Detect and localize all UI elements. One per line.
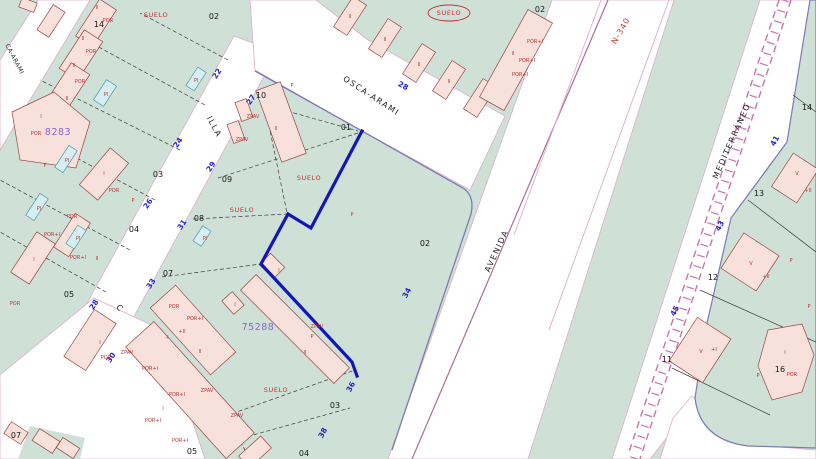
building-label: PI	[203, 236, 208, 242]
building-label: +II	[804, 188, 811, 194]
parcel-number-14: 14	[802, 103, 812, 112]
building-label: POR	[75, 79, 86, 85]
building-label: POR	[67, 214, 78, 220]
building-label: ZPAV	[121, 350, 134, 356]
building-label: +II	[762, 274, 769, 280]
parcel-number-05: 05	[64, 290, 74, 299]
parcel-number-16: 16	[775, 365, 785, 374]
building-label: P	[350, 212, 353, 218]
parcel-number-11: 11	[662, 355, 672, 364]
building-label: I	[99, 340, 100, 346]
building-label: POR	[787, 372, 798, 378]
building-label: PI	[104, 92, 109, 98]
building-label: -I	[165, 335, 168, 341]
building-label: II	[66, 96, 69, 102]
building-label: ZPAV	[311, 324, 324, 330]
building-label: ZPAV	[201, 388, 214, 394]
parcel-number-04: 04	[299, 449, 309, 458]
building-label: II	[82, 36, 85, 42]
building-label: I	[40, 114, 41, 120]
zone-label-suelo: SUELO	[144, 11, 169, 19]
parcel-number-13: 13	[754, 189, 764, 198]
building-label: II	[418, 62, 421, 68]
building-label: II	[73, 63, 76, 69]
building-label: POR+I	[187, 316, 203, 322]
parcel-number-08: 08	[194, 214, 204, 223]
building-label: +II	[178, 329, 185, 335]
parcel-number-12: 12	[708, 273, 718, 282]
building-label: ZPAV	[231, 413, 244, 419]
building-label: +I	[711, 347, 717, 353]
building-label: II	[448, 79, 451, 85]
building-label: I	[33, 257, 34, 263]
building-label: II	[349, 14, 352, 20]
parcel-number-05: 05	[187, 447, 197, 456]
building-label: V	[749, 261, 753, 267]
building-label: POR+I	[142, 366, 158, 372]
building-label: I	[784, 350, 785, 356]
building-label: POR+I	[169, 392, 185, 398]
zone-label-suelo: SUELO	[437, 9, 462, 17]
parcel-number-04: 04	[129, 225, 139, 234]
building-label: ZPAV	[236, 137, 249, 143]
building-label: POR	[101, 355, 112, 361]
building-label: POR+I	[44, 232, 60, 238]
zone-label-suelo: SUELO	[264, 386, 289, 394]
building-label: POR	[109, 188, 120, 194]
parcel-number-02: 02	[420, 239, 430, 248]
building-label: II	[275, 126, 278, 132]
building-label: II	[96, 5, 99, 11]
zone-label-suelo: SUELO	[230, 206, 255, 214]
building-label: POR+I	[519, 58, 535, 64]
building-label: I	[162, 406, 163, 412]
building-label: POR	[103, 18, 114, 24]
building-label: P	[756, 373, 759, 379]
reference-label-75288: 75288	[242, 322, 275, 333]
building-label: P	[43, 163, 46, 169]
building-label: POR	[169, 304, 180, 310]
building-label: ZPAV	[247, 114, 260, 120]
zone-label-suelo: SUELO	[297, 174, 322, 182]
building-label: POR+I	[145, 418, 161, 424]
parcel-number-07: 07	[11, 431, 21, 440]
building-label: II	[384, 37, 387, 43]
building-label: II	[304, 350, 307, 356]
building-label: P	[807, 304, 810, 310]
building-label: II	[96, 256, 99, 262]
building-label: II	[199, 349, 202, 355]
building-label: POR+I	[512, 72, 528, 78]
map-canvas[interactable]: OSCA-ARAMIILLACAVENIDAN-340MEDITERRÁNEOC…	[0, 0, 816, 459]
building-label: POR+I	[172, 438, 188, 444]
building-label: PI	[76, 236, 81, 242]
parcel-number-01: 01	[341, 123, 351, 132]
parcel-number-02: 02	[535, 5, 545, 14]
parcel-number-10: 10	[256, 91, 266, 100]
building-label: PI	[65, 158, 70, 164]
parcel-number-09: 09	[222, 175, 232, 184]
parcel-number-03: 03	[153, 170, 163, 179]
building-label: V	[699, 349, 703, 355]
parcel-number-02: 02	[209, 12, 219, 21]
building-label: PI	[37, 206, 42, 212]
building-label: POR+I	[527, 39, 543, 45]
building-label: I	[278, 268, 279, 274]
building-label: POR	[10, 301, 21, 307]
parcel-number-07: 07	[163, 269, 173, 278]
reference-label-8283: 8283	[45, 127, 71, 138]
parcel-number-03: 03	[330, 401, 340, 410]
building-label: P	[131, 198, 134, 204]
building-label: I	[103, 171, 104, 177]
building-label: P	[789, 258, 792, 264]
building-label: P	[290, 83, 293, 89]
building-label: V	[795, 171, 799, 177]
building-label: II	[512, 51, 515, 57]
building-label: POR	[86, 49, 97, 55]
building-label: POR+I	[70, 255, 86, 261]
building-label: P	[310, 334, 313, 340]
building-label: PI	[194, 78, 199, 84]
cadastral-map-view[interactable]: OSCA-ARAMIILLACAVENIDAN-340MEDITERRÁNEOC…	[0, 0, 816, 459]
building-label: POR	[31, 131, 42, 137]
building-label: I	[234, 302, 235, 308]
